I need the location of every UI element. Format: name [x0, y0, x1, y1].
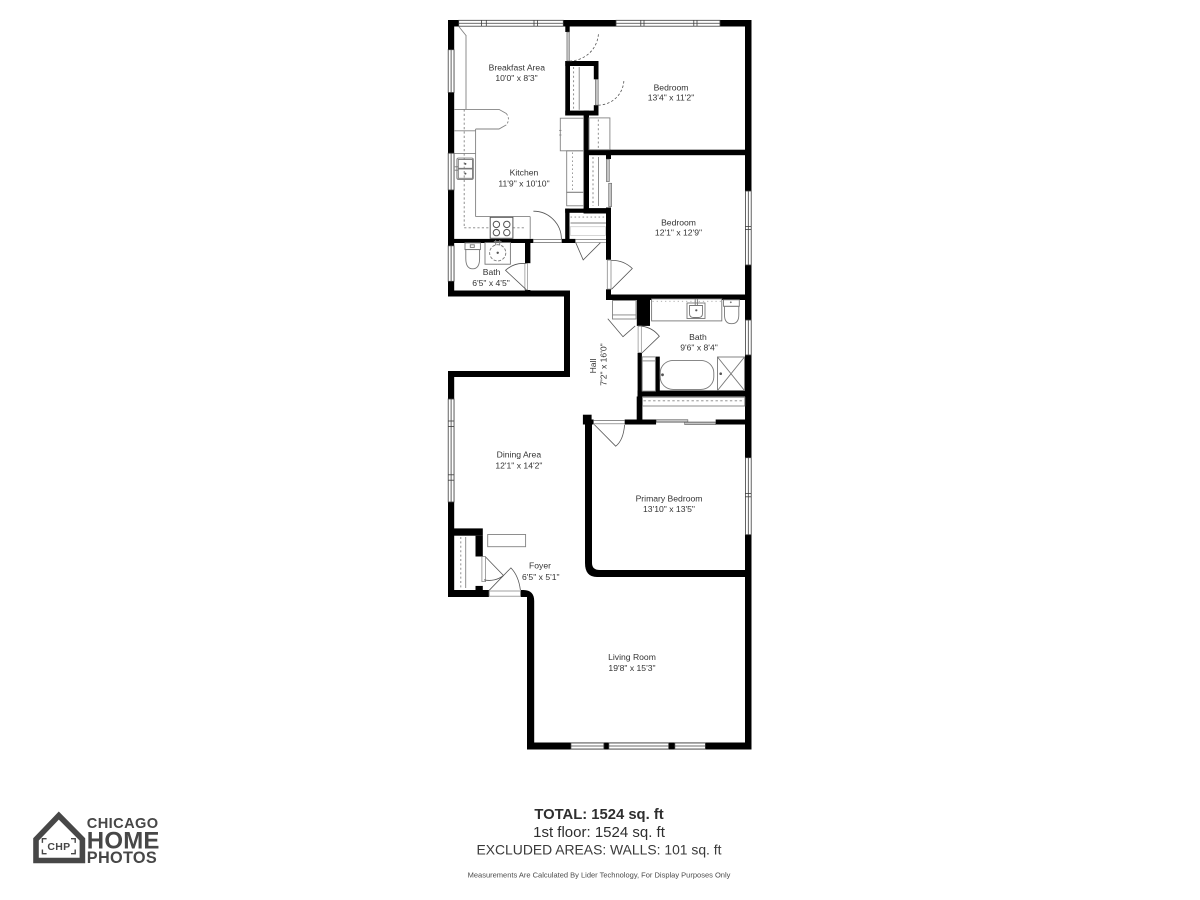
svg-text:Primary Bedroom: Primary Bedroom — [636, 493, 703, 503]
svg-text:9'6" x 8'4": 9'6" x 8'4" — [680, 343, 718, 353]
svg-text:Measurements Are Calculated By: Measurements Are Calculated By Lider Tec… — [468, 871, 731, 880]
svg-text:PHOTOS: PHOTOS — [87, 849, 157, 867]
svg-text:Dining Area: Dining Area — [497, 449, 542, 459]
svg-text:CHP: CHP — [47, 841, 70, 853]
svg-text:6'5" x 5'1": 6'5" x 5'1" — [522, 572, 560, 582]
svg-text:Foyer: Foyer — [529, 560, 551, 570]
svg-text:7'2" x 16'0": 7'2" x 16'0" — [599, 343, 609, 385]
svg-text:19'8" x 15'3": 19'8" x 15'3" — [608, 663, 655, 673]
svg-text:13'10" x 13'5": 13'10" x 13'5" — [643, 504, 695, 514]
svg-text:TOTAL: 1524 sq. ft: TOTAL: 1524 sq. ft — [534, 807, 663, 823]
svg-text:Kitchen: Kitchen — [510, 167, 539, 177]
svg-text:12'1" x 12'9": 12'1" x 12'9" — [655, 228, 702, 238]
svg-text:Bedroom: Bedroom — [654, 82, 689, 92]
svg-text:Hall: Hall — [588, 359, 598, 374]
svg-text:Bath: Bath — [483, 267, 501, 277]
svg-text:Bedroom: Bedroom — [661, 217, 696, 227]
svg-text:6'5" x 4'5": 6'5" x 4'5" — [472, 278, 510, 288]
svg-text:10'0" x 8'3": 10'0" x 8'3" — [495, 73, 537, 83]
svg-text:11'9" x 10'10": 11'9" x 10'10" — [498, 178, 549, 188]
svg-text:Living Room: Living Room — [608, 652, 656, 662]
svg-text:1st floor: 1524 sq. ft: 1st floor: 1524 sq. ft — [533, 824, 666, 841]
svg-text:12'1" x 14'2": 12'1" x 14'2" — [495, 460, 542, 470]
svg-text:13'4" x 11'2": 13'4" x 11'2" — [648, 93, 695, 103]
svg-text:EXCLUDED AREAS: WALLS: 101 sq.: EXCLUDED AREAS: WALLS: 101 sq. ft — [477, 842, 722, 858]
svg-text:Bath: Bath — [689, 332, 707, 342]
svg-text:Breakfast Area: Breakfast Area — [489, 62, 546, 72]
